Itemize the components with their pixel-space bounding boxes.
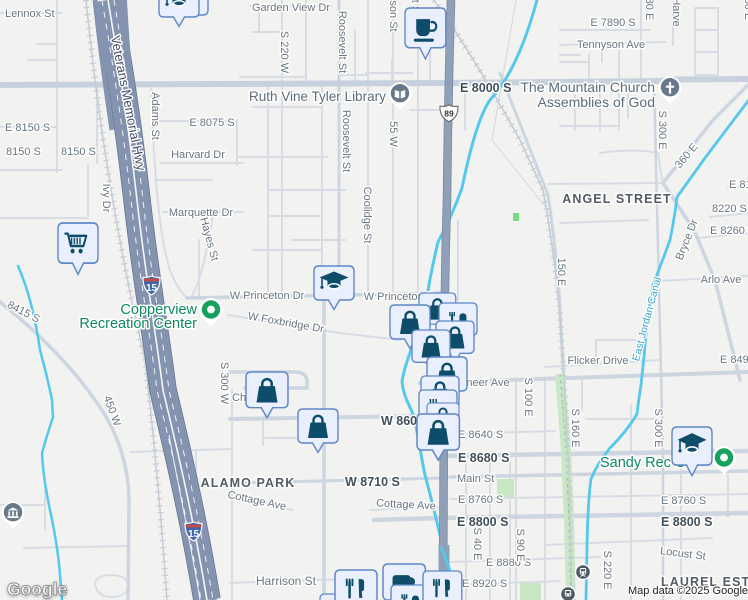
svg-text:8220 S: 8220 S [712,203,747,215]
svg-text:S 160 E: S 160 E [569,408,581,447]
svg-text:Lennox St: Lennox St [5,8,55,20]
svg-text:ALAMO PARK: ALAMO PARK [201,476,296,490]
svg-text:Harve: Harve [670,0,682,27]
svg-text:Roosevelt St: Roosevelt St [340,110,352,172]
svg-text:89: 89 [444,109,454,119]
svg-text:15: 15 [146,283,158,294]
svg-text:E 8260 S: E 8260 S [710,225,748,237]
svg-text:S 40 E: S 40 E [471,527,483,560]
svg-text:Garden View Dr: Garden View Dr [252,2,330,14]
svg-text:S 220 E: S 220 E [601,550,613,589]
svg-text:E 8800 S: E 8800 S [457,515,508,529]
svg-text:E 8000 S: E 8000 S [460,81,511,95]
svg-text:8150 S: 8150 S [6,146,41,158]
svg-text:ANGEL STREET: ANGEL STREET [562,192,672,206]
svg-text:E 8920 S: E 8920 S [462,578,507,590]
svg-text:S 220 W: S 220 W [278,31,290,74]
svg-text:W Princeton Dr: W Princeton Dr [230,290,305,302]
svg-text:E 8760 S: E 8760 S [458,494,503,506]
svg-text:son St: son St [387,0,399,31]
svg-text:80 E: 80 E [643,0,655,20]
svg-text:Recreation Center: Recreation Center [79,316,197,332]
svg-text:Main St: Main St [457,473,494,485]
svg-text:E 81: E 81 [729,179,748,191]
svg-text:Assemblies of God: Assemblies of God [538,94,656,110]
svg-text:Ivy Dr: Ivy Dr [100,184,112,213]
svg-text:S 300 W: S 300 W [218,362,230,405]
svg-text:W 860: W 860 [381,414,417,428]
svg-text:E 8760 S: E 8760 S [661,495,706,507]
svg-text:W 8710 S: W 8710 S [345,475,400,489]
svg-text:E 8800 S: E 8800 S [661,515,712,529]
svg-text:Adams St: Adams St [149,92,161,140]
svg-text:S 300 E: S 300 E [656,110,668,149]
svg-text:E 8150 S: E 8150 S [5,122,50,134]
svg-text:Ch: Ch [232,392,246,404]
svg-text:The Mountain Church: The Mountain Church [520,79,655,95]
svg-text:Ruth Vine Tyler Library: Ruth Vine Tyler Library [249,89,386,104]
svg-text:55 W: 55 W [387,121,399,147]
svg-text:E 8640 S: E 8640 S [458,429,503,441]
svg-text:Harrison St: Harrison St [256,574,317,588]
svg-text:8150 S: 8150 S [61,146,96,158]
svg-text:Arlo Ave: Arlo Ave [701,274,742,286]
svg-text:Coolidge St: Coolidge St [361,187,373,244]
svg-text:S 90 E: S 90 E [514,528,526,561]
svg-text:E 8075 S: E 8075 S [189,117,234,129]
svg-text:Flicker Drive: Flicker Drive [567,355,628,367]
svg-text:E 7890 S: E 7890 S [590,17,635,29]
svg-text:E 8490: E 8490 [720,354,748,366]
svg-text:Google: Google [7,579,68,599]
svg-text:Tennyson Ave: Tennyson Ave [577,39,645,51]
svg-text:E 8680 S: E 8680 S [458,451,509,465]
svg-text:S 100 E: S 100 E [522,377,534,416]
svg-text:Harvard Dr: Harvard Dr [171,149,225,161]
svg-text:Roosevelt St: Roosevelt St [336,11,348,73]
svg-text:15: 15 [188,529,200,540]
svg-text:150 E: 150 E [555,258,567,287]
svg-text:S 300 E: S 300 E [652,408,664,447]
svg-text:Map data ©2025 Google: Map data ©2025 Google [628,585,748,597]
svg-text:50 E: 50 E [742,0,748,20]
